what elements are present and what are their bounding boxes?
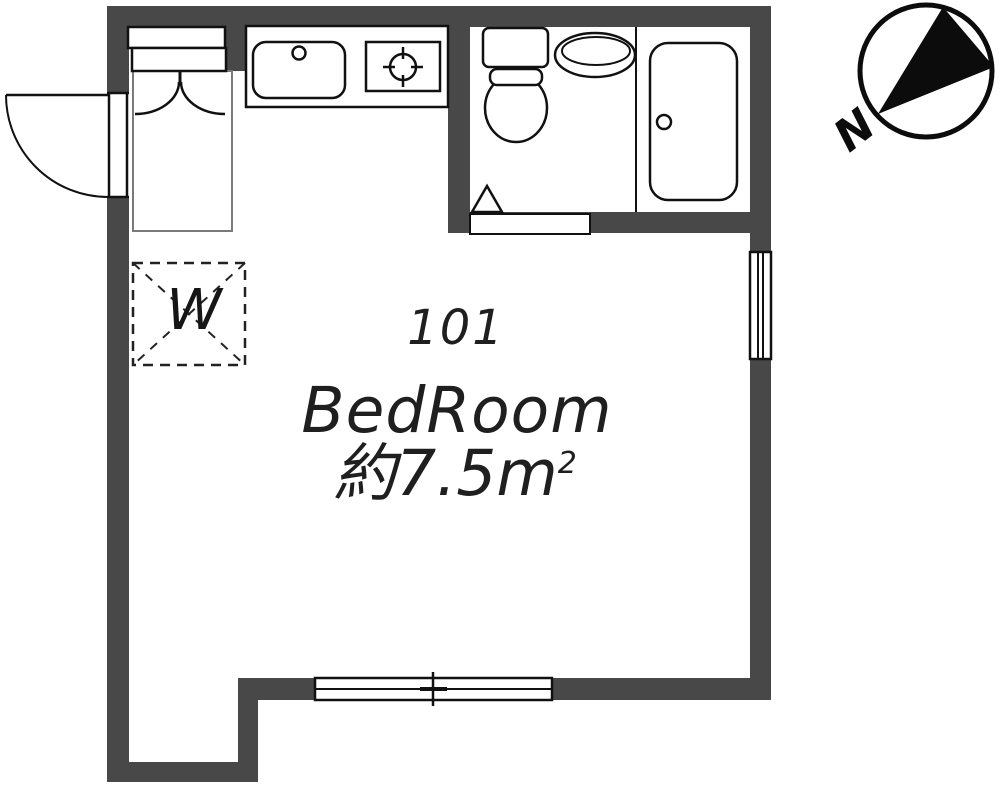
door-swing-triangle	[472, 186, 502, 212]
wall-south-left	[107, 762, 258, 782]
bed-body	[133, 71, 232, 231]
window-east	[750, 252, 771, 359]
toilet	[483, 28, 548, 142]
washer-label: W	[166, 283, 221, 339]
room-area-value: 約7.5m	[333, 437, 558, 510]
wall-south-a	[238, 678, 315, 700]
toilet-tank	[483, 28, 548, 67]
wall-west-upper	[107, 6, 129, 93]
floor-plan: 101 BedRoom 約7.5m2 W N	[0, 0, 1000, 788]
wall-east-lower	[750, 359, 771, 700]
wall-west-lower	[107, 197, 129, 782]
bed-headboard	[128, 27, 225, 48]
entry-door	[6, 93, 129, 197]
wall-north	[107, 6, 771, 27]
bathtub-drain	[657, 115, 671, 129]
wall-bath-divider	[448, 27, 470, 233]
room-area-superscript: 2	[558, 446, 577, 481]
kitchen	[246, 26, 448, 107]
bathroom	[470, 27, 737, 234]
basin-bowl	[562, 37, 630, 65]
window-south	[315, 672, 552, 706]
entry-door-opening	[107, 93, 129, 197]
bathroom-door-step	[470, 214, 590, 234]
entry-door-swing-arc	[6, 95, 108, 197]
toilet-seat	[490, 69, 542, 85]
bed-pillow	[132, 48, 226, 71]
window-latch	[420, 687, 447, 691]
room-area: 約7.5m2	[333, 442, 577, 505]
bathtub	[650, 43, 737, 200]
wall-stub-kitchen	[226, 27, 246, 71]
room-name: BedRoom	[301, 379, 612, 442]
wash-basin	[555, 33, 635, 77]
bed	[128, 27, 232, 231]
wall-south-b	[552, 678, 771, 700]
room-number: 101	[407, 304, 505, 352]
faucet-icon	[293, 47, 306, 60]
compass-north	[860, 5, 994, 137]
